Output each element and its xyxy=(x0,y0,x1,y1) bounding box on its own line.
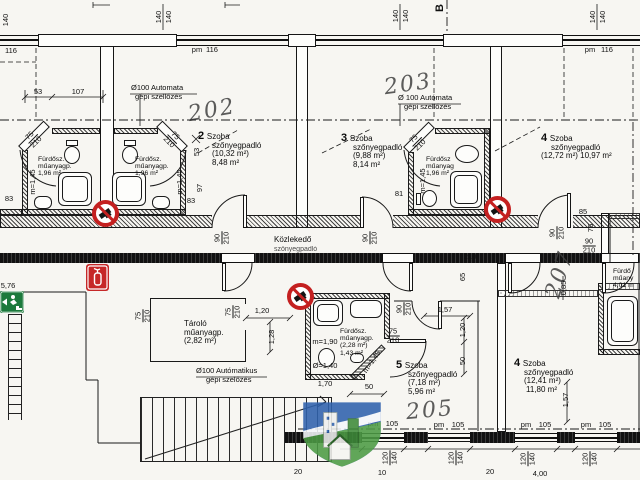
room4-bottom-label: 4 Szoba szőnyegpadló (12,41 m²) 11,80 m² xyxy=(514,359,573,394)
dimension-label: 140 xyxy=(155,11,163,24)
vent-note-3: Ø100 Autómatikus gépi szelőzés xyxy=(196,366,257,384)
floor-plan-drawing: 2 Szoba szőnyegpadló (10,32 m²) 8,48 m² … xyxy=(0,0,640,480)
dimension-label: 4,00 xyxy=(533,470,548,478)
bath3-wall xyxy=(408,152,414,215)
bath4-right-label: Fürdő műany 4,01 m xyxy=(613,268,634,290)
dimension-label: pm xyxy=(434,421,444,429)
vent-note-1: Ø100 Automata gépi szellőzés xyxy=(131,83,183,101)
bath-edge-wall xyxy=(0,209,22,215)
dimension-label: 1,70 xyxy=(318,380,333,388)
dimension-label: 97 xyxy=(196,184,204,192)
washbasin xyxy=(152,196,170,209)
dimension-label: 20 xyxy=(294,468,302,476)
door-leaf xyxy=(360,197,364,228)
dimension-label: 53 xyxy=(34,88,42,96)
dimension-label: 210 xyxy=(464,253,477,261)
dimension-label: 0,85 xyxy=(560,281,568,296)
bathtub xyxy=(607,296,638,346)
bath5-wall xyxy=(305,293,390,299)
section-marker-b: B xyxy=(436,4,444,12)
dimension-label: 75210 xyxy=(225,306,242,319)
room3-label: 3 Szoba szőnyegpadló (9,88 m²) 8,14 m² xyxy=(341,134,402,169)
dimension-label: 120140 xyxy=(448,451,465,466)
fire-extinguisher-icon xyxy=(86,264,109,291)
watermark-shield-logo xyxy=(291,396,393,468)
dimension-label: 90210 xyxy=(214,232,231,245)
dimension-label: Ø=1,40 xyxy=(313,362,338,370)
dimension-label: 90210 xyxy=(583,238,596,255)
dimension-label: 83 xyxy=(187,197,195,205)
bath2-label: Fürdősz. műanyagp. 1,96 m² xyxy=(135,156,169,178)
wall-bottom xyxy=(617,432,640,443)
door-opening xyxy=(602,253,638,263)
bath5-label: Fürdősz. műanyagp. (2,28 m²) 1,43 m² xyxy=(340,328,374,357)
washbasin xyxy=(34,196,52,209)
prohibition-sign-icon xyxy=(287,283,314,310)
prohibition-sign-icon xyxy=(484,196,511,223)
door-leaf xyxy=(567,193,571,228)
dimension-label: 90210 xyxy=(549,227,566,240)
door-opening xyxy=(506,253,540,263)
dimension-label: m=1,45 xyxy=(419,168,427,193)
dimension-label: pm xyxy=(521,421,531,429)
bath1-label: Fürdősz. műanyagp. 1,96 m² xyxy=(38,156,72,178)
wall-bottom xyxy=(404,432,428,443)
dimension-label: 90210 xyxy=(362,232,379,245)
wall-pier xyxy=(443,34,563,47)
door-leaf xyxy=(222,263,226,291)
dimension-label: 53 xyxy=(193,148,201,156)
dimension-label: 1,28 xyxy=(268,330,276,345)
dimension-label: 75210 xyxy=(387,328,400,345)
dimension-label: 75 xyxy=(587,224,595,232)
emergency-exit-icon xyxy=(0,291,24,313)
dimension-label: 116 xyxy=(601,46,613,54)
wall-bottom xyxy=(557,432,575,443)
door-opening xyxy=(383,253,413,263)
washbasin xyxy=(455,145,479,163)
wall-divider xyxy=(296,46,308,228)
dimension-label: 107 xyxy=(72,88,85,96)
toilet-tank xyxy=(416,193,421,205)
room5-label: 5 Szoba szőnyegpadló (7,18 m²) 5,96 m² xyxy=(396,361,457,396)
shower-tray xyxy=(313,300,343,326)
door-leaf xyxy=(409,263,413,291)
dimension-label: m=1,90 xyxy=(312,338,337,346)
room4-top-label: 4 Szoba szőnyegpadló (12,72 m²) 10,97 m² xyxy=(541,134,612,161)
dimension-label: 140 xyxy=(2,14,10,27)
door-leaf xyxy=(508,263,512,293)
bath1-wall xyxy=(52,128,100,134)
door-opening xyxy=(360,215,393,228)
door-leaf xyxy=(243,195,247,228)
bath2-wall xyxy=(114,209,186,215)
bathtub xyxy=(350,300,382,318)
door-opening xyxy=(245,304,248,330)
bathtub xyxy=(450,171,482,208)
door-opening xyxy=(212,215,247,228)
bath1-wall xyxy=(22,209,100,215)
prohibition-sign-icon xyxy=(92,200,119,227)
dimension-label: 140 xyxy=(599,11,607,24)
dimension-label: pm xyxy=(192,46,202,54)
bath3-wall xyxy=(408,209,490,215)
bath4-wall xyxy=(598,283,604,355)
dimension-label: 120140 xyxy=(582,452,599,467)
dimension-label: 116 xyxy=(206,46,218,54)
bath3-label: Fürdősz műanyag 1,96 m² xyxy=(426,156,454,178)
corridor-label: Közlekedő szőnyegpadló xyxy=(274,236,317,254)
dimension-label: 140 xyxy=(589,11,597,24)
dimension-label: 65 xyxy=(459,273,467,281)
dimension-label: 50 xyxy=(459,357,467,365)
dimension-label: 140 xyxy=(402,10,410,23)
dimension-label: 140 xyxy=(392,10,400,23)
bath3-wall xyxy=(435,128,490,134)
dimension-label: 105 xyxy=(539,421,552,429)
dimension-label: m=1,45 xyxy=(176,169,184,194)
bath-right-wall xyxy=(609,213,640,219)
dimension-label: 1,20 xyxy=(459,323,467,338)
door-leaf xyxy=(602,263,606,293)
wall-bottom xyxy=(470,432,515,443)
dimension-label: 20 xyxy=(486,468,494,476)
dimension-label: 81 xyxy=(395,190,403,198)
window-top-3 xyxy=(316,35,443,46)
dimension-label: pm xyxy=(585,46,595,54)
dimension-label: 1,57 xyxy=(438,306,453,314)
dimension-label: 116 xyxy=(5,47,17,55)
dimension-label: 83 xyxy=(5,195,13,203)
dimension-label: 85 xyxy=(579,208,587,216)
handwritten-205: 205 xyxy=(405,396,455,425)
dimension-label: 50 xyxy=(365,383,373,391)
bath2-wall xyxy=(114,128,158,134)
dimension-label: 90210 xyxy=(396,303,413,316)
corridor-south-wall xyxy=(0,253,640,263)
window-bottom-3 xyxy=(515,433,557,442)
dimension-label: pm xyxy=(581,421,591,429)
wall-divider xyxy=(497,263,506,432)
room2-label: 2 Szoba szőnyegpadló (10,32 m²) 8,48 m² xyxy=(198,132,261,167)
dimension-label: 5,76 xyxy=(1,282,16,290)
dimension-label: 1,20 xyxy=(255,307,270,315)
handwritten-202: 202 xyxy=(186,94,238,127)
dimension-label: 10 xyxy=(378,469,386,477)
window-bottom-2 xyxy=(428,433,470,442)
dimension-label: 105 xyxy=(452,421,465,429)
storage-label: Tároló műanyagp. (2,82 m²) xyxy=(184,320,224,346)
ladder xyxy=(8,314,22,420)
dimension-label: 140 xyxy=(165,11,173,24)
bath4-wall xyxy=(598,349,640,355)
dimension-label: 1,57 xyxy=(562,393,570,408)
window-bottom-4 xyxy=(575,433,617,442)
dimension-label: m=1,45 xyxy=(29,169,37,194)
dimension-label: 120140 xyxy=(520,452,537,467)
window-top-1 xyxy=(0,35,38,46)
dimension-label: 105 xyxy=(599,421,612,429)
door-opening xyxy=(222,253,254,263)
dimension-label: 75210 xyxy=(135,310,152,323)
